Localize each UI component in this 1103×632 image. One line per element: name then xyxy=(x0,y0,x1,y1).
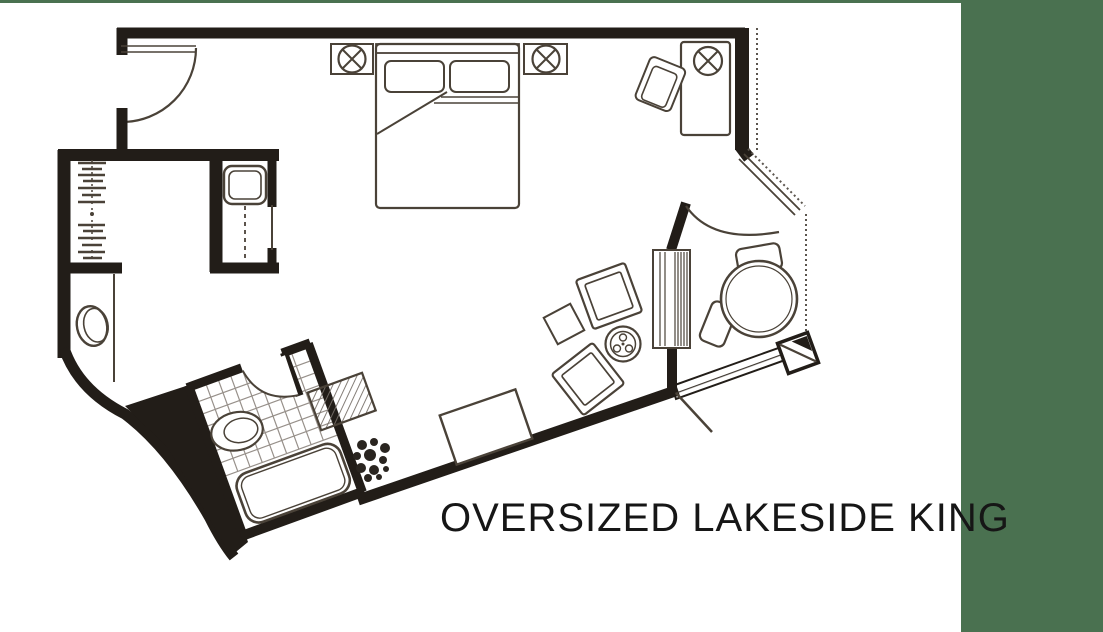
top-accent-strip xyxy=(0,0,1103,3)
round-side-table xyxy=(606,327,641,362)
bench-ottoman xyxy=(440,389,533,464)
walls xyxy=(58,28,749,557)
pillow-right xyxy=(450,61,509,92)
hangers-icon xyxy=(78,163,106,258)
right-wall-bend xyxy=(740,146,749,158)
bed-area xyxy=(331,44,567,208)
deck-walkway xyxy=(672,346,788,399)
sheet-fold xyxy=(377,92,447,134)
vanity-oval xyxy=(73,303,112,349)
balcony-door-swing-arc xyxy=(686,206,779,235)
page: OVERSIZED LAKESIDE KING xyxy=(0,0,1103,632)
rod-dot xyxy=(90,212,94,216)
balcony-wall-stub xyxy=(671,203,686,250)
king-bed xyxy=(376,44,519,208)
entry-door-swing-arc xyxy=(122,48,196,122)
lounge-chair-top xyxy=(576,263,643,330)
walkway-end-marker xyxy=(777,332,818,373)
side-table-square xyxy=(544,304,585,345)
desk xyxy=(681,42,730,135)
dining-set xyxy=(698,242,797,348)
desk-chair xyxy=(634,56,686,113)
walkway-door-leaf xyxy=(676,393,712,432)
entry-door-frame xyxy=(121,46,196,52)
dining-table xyxy=(721,261,797,337)
pillow-left xyxy=(385,61,444,92)
desk-area xyxy=(634,42,730,135)
room-title: OVERSIZED LAKESIDE KING xyxy=(440,496,1010,541)
angled-window xyxy=(739,154,800,215)
closet-contents xyxy=(73,160,266,349)
console-unit xyxy=(653,250,690,348)
